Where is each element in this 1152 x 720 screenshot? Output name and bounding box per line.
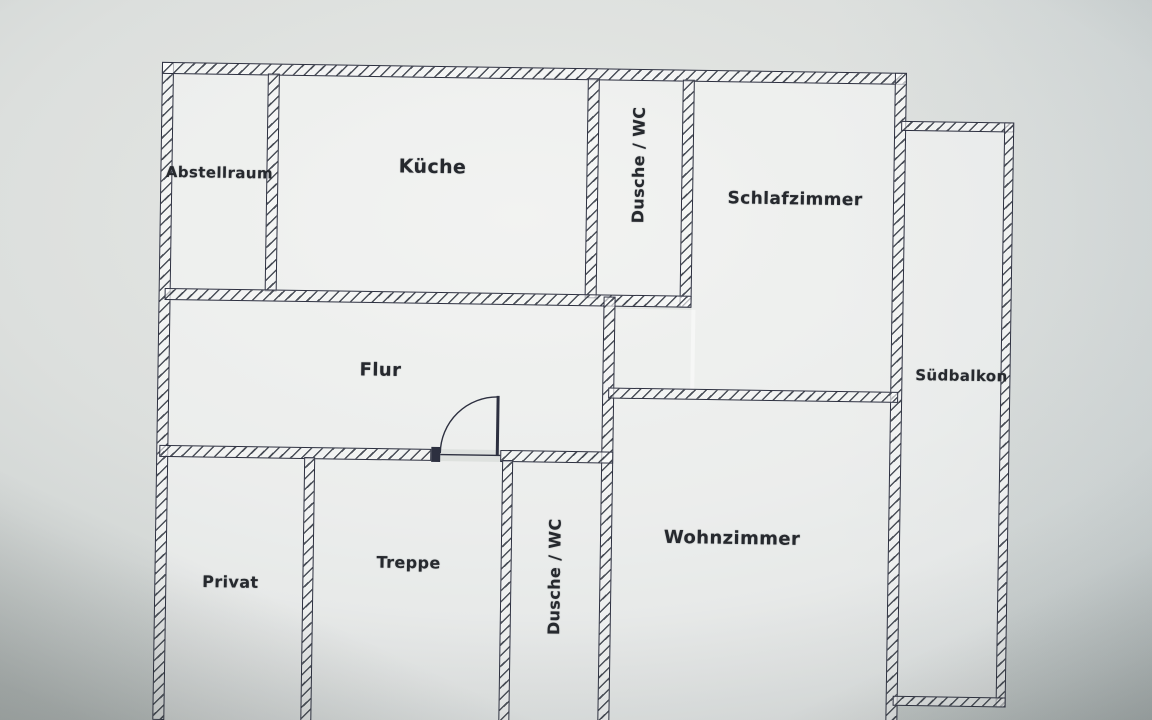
wall-balkon-oben bbox=[901, 121, 1014, 133]
room-label-abstellraum: Abstellraum bbox=[166, 163, 273, 183]
room-label-treppe: Treppe bbox=[376, 553, 440, 573]
wall-balkon-unten bbox=[893, 696, 1006, 708]
door-threshold bbox=[440, 455, 500, 456]
floor-plan: Abstellraum Küche Dusche / WC Schlafzimm… bbox=[0, 0, 1152, 720]
room-label-privat: Privat bbox=[202, 572, 259, 592]
room-label-schlafzimmer: Schlafzimmer bbox=[727, 188, 862, 210]
room-wohnzimmer bbox=[609, 399, 890, 720]
room-suedbalkon bbox=[898, 131, 1004, 697]
room-label-dusche-wc-unten: Dusche / WC bbox=[544, 518, 565, 635]
room-treppe bbox=[311, 459, 502, 720]
floorplan-photo: Abstellraum Küche Dusche / WC Schlafzimm… bbox=[0, 0, 1152, 720]
room-schlafzimmer-erweiterung bbox=[614, 309, 695, 390]
room-label-kueche: Küche bbox=[399, 155, 467, 178]
room-kueche bbox=[277, 76, 588, 295]
room-label-dusche-wc-oben: Dusche / WC bbox=[628, 106, 649, 223]
room-label-wohnzimmer: Wohnzimmer bbox=[664, 527, 801, 550]
door-jamb bbox=[431, 447, 440, 462]
room-label-suedbalkon: Südbalkon bbox=[915, 366, 1008, 385]
room-label-flur: Flur bbox=[359, 359, 401, 381]
room-schlafzimmer bbox=[690, 82, 895, 393]
wall-flur-unten-rechts bbox=[500, 450, 613, 464]
